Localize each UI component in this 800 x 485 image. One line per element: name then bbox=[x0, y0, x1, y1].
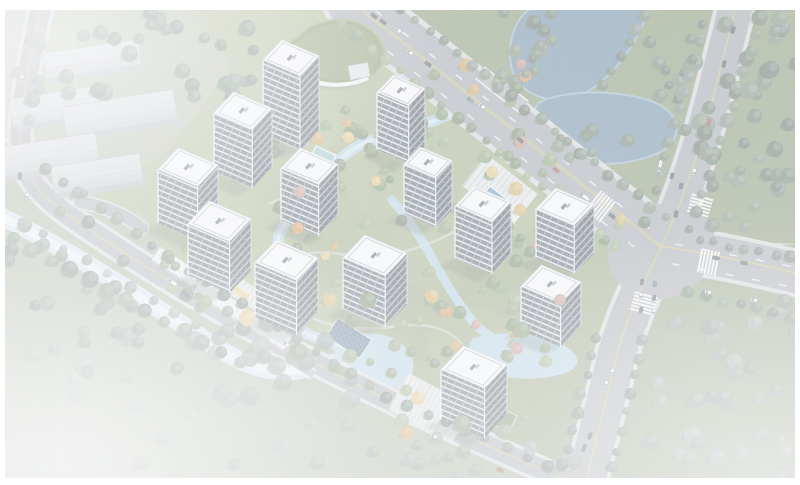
masterplan-aerial-rendering bbox=[0, 0, 800, 485]
cool-tint-veil bbox=[0, 0, 800, 485]
aerial-rendering-stage bbox=[0, 0, 800, 485]
atmospheric-haze-layer bbox=[0, 0, 800, 485]
